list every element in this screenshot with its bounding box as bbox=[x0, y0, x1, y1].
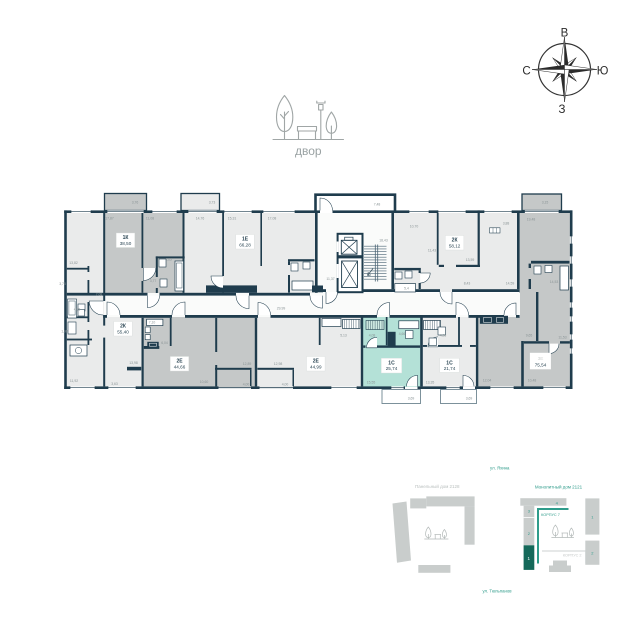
svg-text:3,69: 3,69 bbox=[466, 397, 473, 401]
svg-text:13,98: 13,98 bbox=[129, 361, 138, 365]
svg-text:18,43: 18,43 bbox=[379, 239, 388, 243]
svg-text:1,98: 1,98 bbox=[61, 330, 68, 334]
svg-text:3,88: 3,88 bbox=[503, 222, 510, 226]
svg-text:1К: 1К bbox=[123, 235, 130, 241]
svg-text:66,28: 66,28 bbox=[239, 243, 251, 248]
svg-text:29,99: 29,99 bbox=[277, 307, 286, 311]
svg-text:58,12: 58,12 bbox=[449, 244, 461, 249]
svg-text:13,59: 13,59 bbox=[466, 258, 475, 262]
svg-text:4,66: 4,66 bbox=[399, 332, 406, 336]
svg-text:11,43: 11,43 bbox=[428, 249, 436, 253]
svg-text:8,43: 8,43 bbox=[464, 282, 471, 286]
svg-text:3,73: 3,73 bbox=[209, 201, 216, 205]
svg-text:14,53: 14,53 bbox=[550, 280, 559, 284]
svg-text:3,69: 3,69 bbox=[408, 397, 415, 401]
svg-text:2К: 2К bbox=[452, 238, 459, 244]
svg-text:Панельный дом 2128: Панельный дом 2128 bbox=[415, 483, 460, 489]
svg-text:3Е: 3Е bbox=[538, 356, 544, 361]
svg-text:3,63: 3,63 bbox=[111, 382, 118, 386]
svg-text:З: З bbox=[559, 104, 566, 116]
svg-text:11,37: 11,37 bbox=[326, 277, 334, 281]
svg-text:7,48: 7,48 bbox=[374, 203, 381, 207]
svg-text:ул. Яхина: ул. Яхина bbox=[490, 466, 510, 471]
svg-text:21,74: 21,74 bbox=[444, 366, 456, 371]
svg-text:3,77: 3,77 bbox=[150, 279, 157, 283]
svg-text:11,53: 11,53 bbox=[558, 336, 566, 340]
svg-text:15,31: 15,31 bbox=[228, 217, 237, 221]
svg-text:13,82: 13,82 bbox=[69, 261, 78, 265]
svg-text:2Е: 2Е bbox=[313, 359, 320, 365]
svg-text:4,00: 4,00 bbox=[282, 383, 289, 387]
svg-text:38,50: 38,50 bbox=[120, 241, 132, 246]
svg-text:9,65: 9,65 bbox=[526, 334, 533, 338]
svg-text:75,54: 75,54 bbox=[535, 362, 547, 367]
svg-text:14,59: 14,59 bbox=[506, 282, 515, 286]
svg-text:13,35: 13,35 bbox=[426, 381, 435, 385]
svg-text:4,00: 4,00 bbox=[243, 383, 250, 387]
svg-text:25,74: 25,74 bbox=[386, 366, 398, 371]
svg-text:11,92: 11,92 bbox=[70, 379, 78, 383]
svg-text:С: С bbox=[522, 66, 530, 78]
svg-text:В: В bbox=[561, 28, 569, 40]
svg-text:4,98: 4,98 bbox=[440, 334, 447, 338]
svg-text:2Е: 2Е bbox=[176, 359, 183, 365]
svg-text:11,08: 11,08 bbox=[146, 217, 154, 221]
svg-text:17,87: 17,87 bbox=[105, 217, 114, 221]
svg-text:10,70: 10,70 bbox=[410, 225, 419, 229]
svg-text:10,48: 10,48 bbox=[528, 379, 537, 383]
svg-text:5,4: 5,4 bbox=[404, 287, 409, 291]
svg-text:КОРПУС 7: КОРПУС 7 bbox=[541, 513, 560, 517]
svg-text:4,08: 4,08 bbox=[369, 334, 376, 338]
svg-text:1С: 1С bbox=[446, 360, 453, 366]
svg-text:КОРПУС 2: КОРПУС 2 bbox=[563, 554, 582, 558]
svg-text:44,99: 44,99 bbox=[310, 365, 322, 370]
svg-text:3,76: 3,76 bbox=[132, 201, 139, 205]
svg-text:7,10: 7,10 bbox=[149, 321, 156, 325]
svg-text:3,73: 3,73 bbox=[59, 282, 66, 286]
svg-text:4,65: 4,65 bbox=[165, 258, 172, 262]
svg-text:3,15: 3,15 bbox=[542, 201, 549, 205]
svg-text:1Е: 1Е bbox=[242, 237, 249, 243]
svg-text:5,13: 5,13 bbox=[340, 334, 347, 338]
svg-text:1С: 1С bbox=[388, 360, 395, 366]
svg-text:6,04: 6,04 bbox=[161, 341, 168, 345]
svg-text:12,04: 12,04 bbox=[483, 379, 492, 383]
svg-text:19,48: 19,48 bbox=[527, 218, 536, 222]
svg-text:55,40: 55,40 bbox=[117, 330, 129, 335]
svg-text:7,08: 7,08 bbox=[96, 293, 103, 297]
svg-text:44,66: 44,66 bbox=[174, 365, 186, 370]
svg-text:14,76: 14,76 bbox=[196, 217, 205, 221]
svg-text:15,55: 15,55 bbox=[367, 381, 376, 385]
svg-text:2К: 2К bbox=[120, 324, 127, 330]
svg-text:Монолитный дом 2121: Монолитный дом 2121 bbox=[535, 484, 583, 490]
svg-text:4,98: 4,98 bbox=[74, 308, 81, 312]
svg-text:17,08: 17,08 bbox=[268, 217, 277, 221]
svg-text:12,89: 12,89 bbox=[243, 362, 252, 366]
svg-text:Ю: Ю bbox=[597, 66, 609, 78]
svg-text:ул. Тюльпанов: ул. Тюльпанов bbox=[482, 589, 512, 594]
svg-text:12,98: 12,98 bbox=[274, 362, 283, 366]
svg-text:10,60: 10,60 bbox=[200, 380, 209, 384]
svg-text:двор: двор bbox=[295, 144, 322, 158]
